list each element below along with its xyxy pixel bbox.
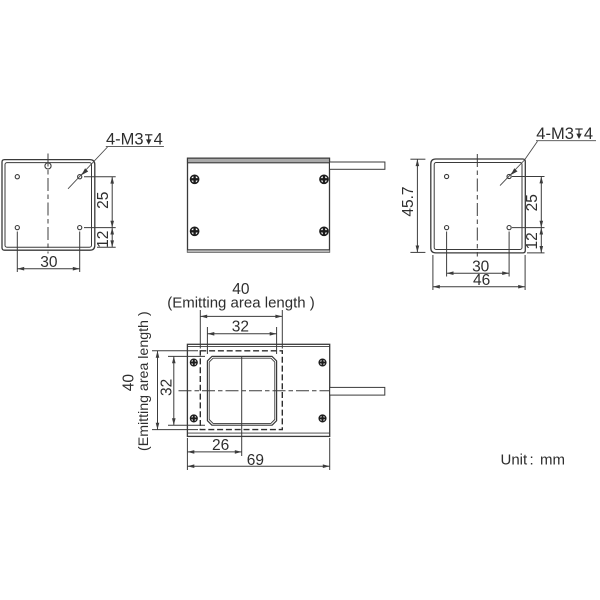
svg-text:(Emitting area length ): (Emitting area length ) <box>167 295 315 312</box>
svg-text:69: 69 <box>247 452 264 469</box>
svg-text:12: 12 <box>524 232 541 249</box>
svg-text:mm: mm <box>540 452 565 469</box>
svg-text:30: 30 <box>40 254 58 271</box>
svg-text:26: 26 <box>212 437 229 454</box>
svg-text:46: 46 <box>473 272 490 289</box>
svg-text:4-M3: 4-M3 <box>106 131 144 149</box>
svg-text:25: 25 <box>95 192 112 209</box>
svg-text:4: 4 <box>154 131 163 149</box>
svg-text:32: 32 <box>232 318 249 335</box>
svg-text:25: 25 <box>524 194 541 211</box>
svg-text:(Emitting area length ): (Emitting area length ) <box>136 311 152 451</box>
svg-text:4-M3: 4-M3 <box>536 125 574 143</box>
svg-text:12: 12 <box>95 231 112 248</box>
svg-text:Unit: Unit <box>501 452 529 469</box>
svg-text:45.7: 45.7 <box>400 187 417 217</box>
svg-text:32: 32 <box>159 379 176 396</box>
svg-text::: : <box>530 452 534 469</box>
svg-text:4: 4 <box>584 125 593 143</box>
